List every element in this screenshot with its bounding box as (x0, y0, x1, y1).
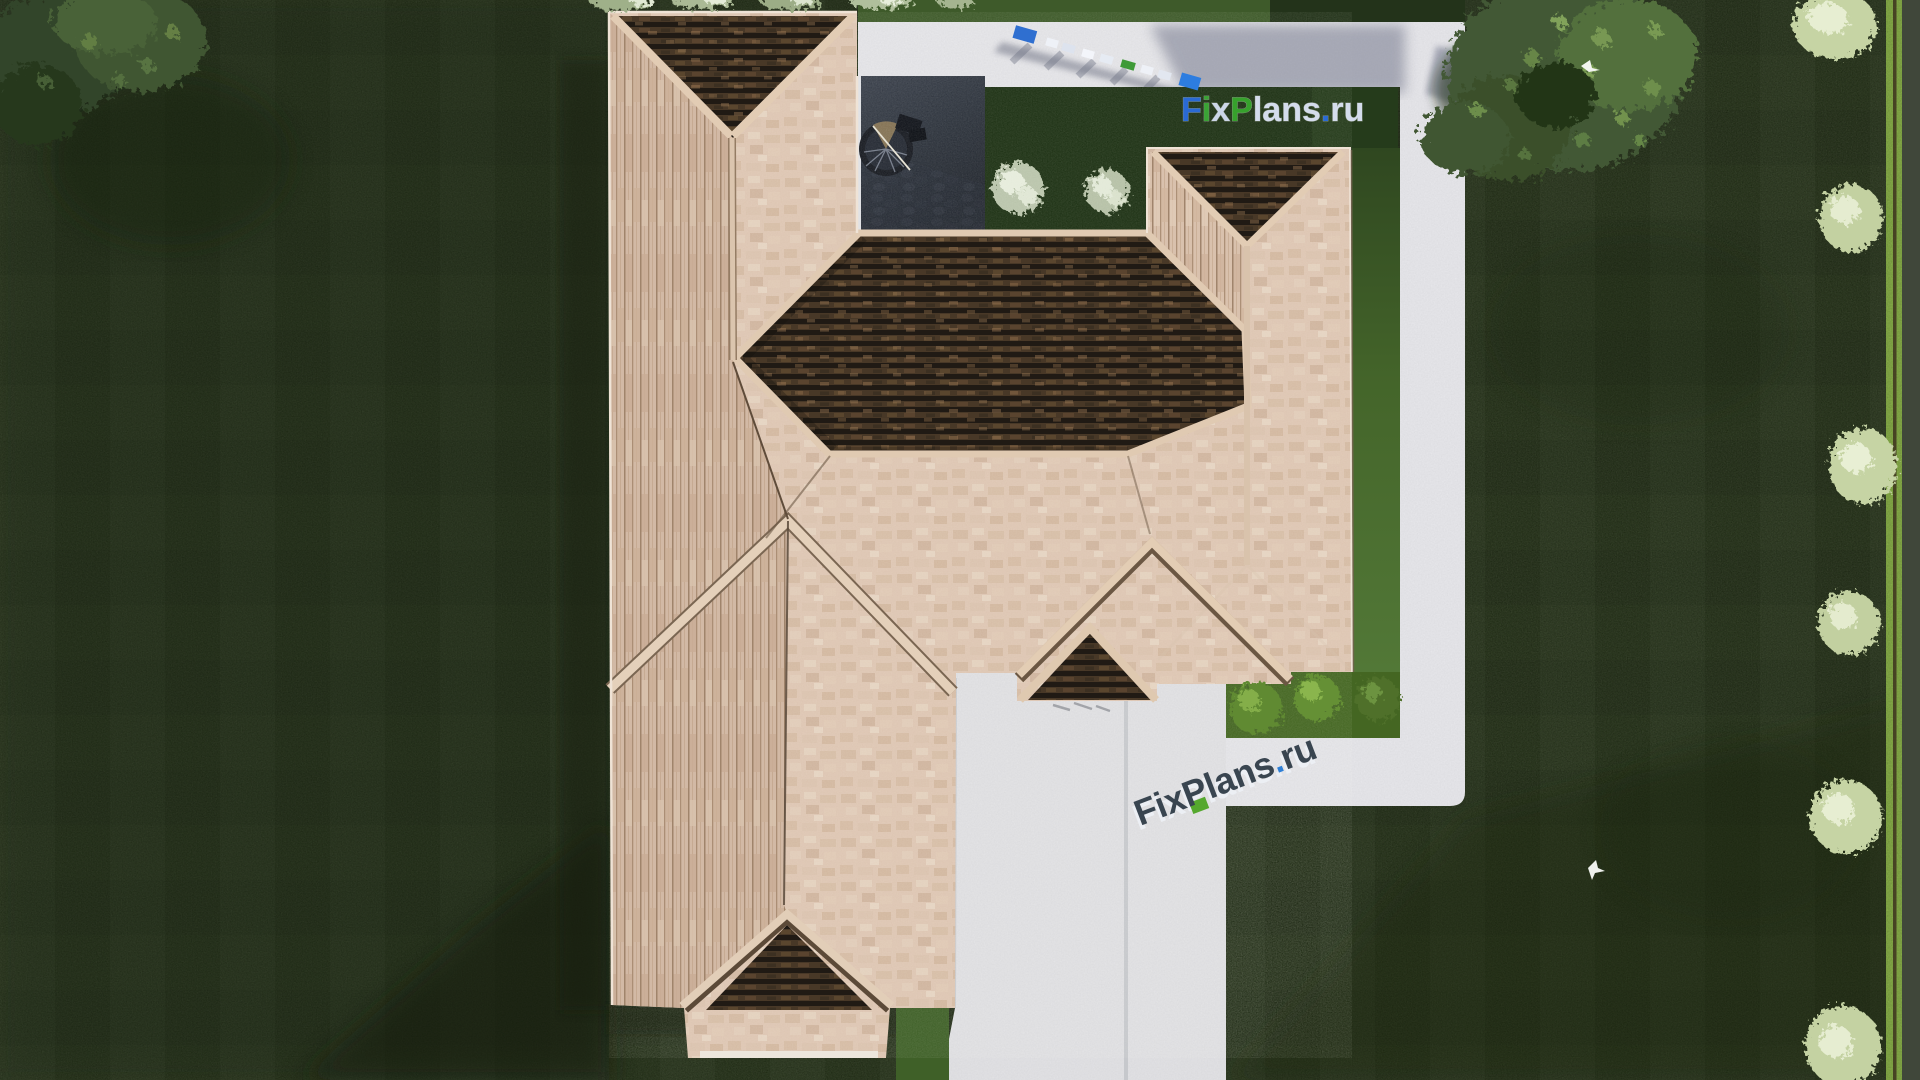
svg-text:FixPlans.ru: FixPlans.ru (1181, 91, 1364, 129)
